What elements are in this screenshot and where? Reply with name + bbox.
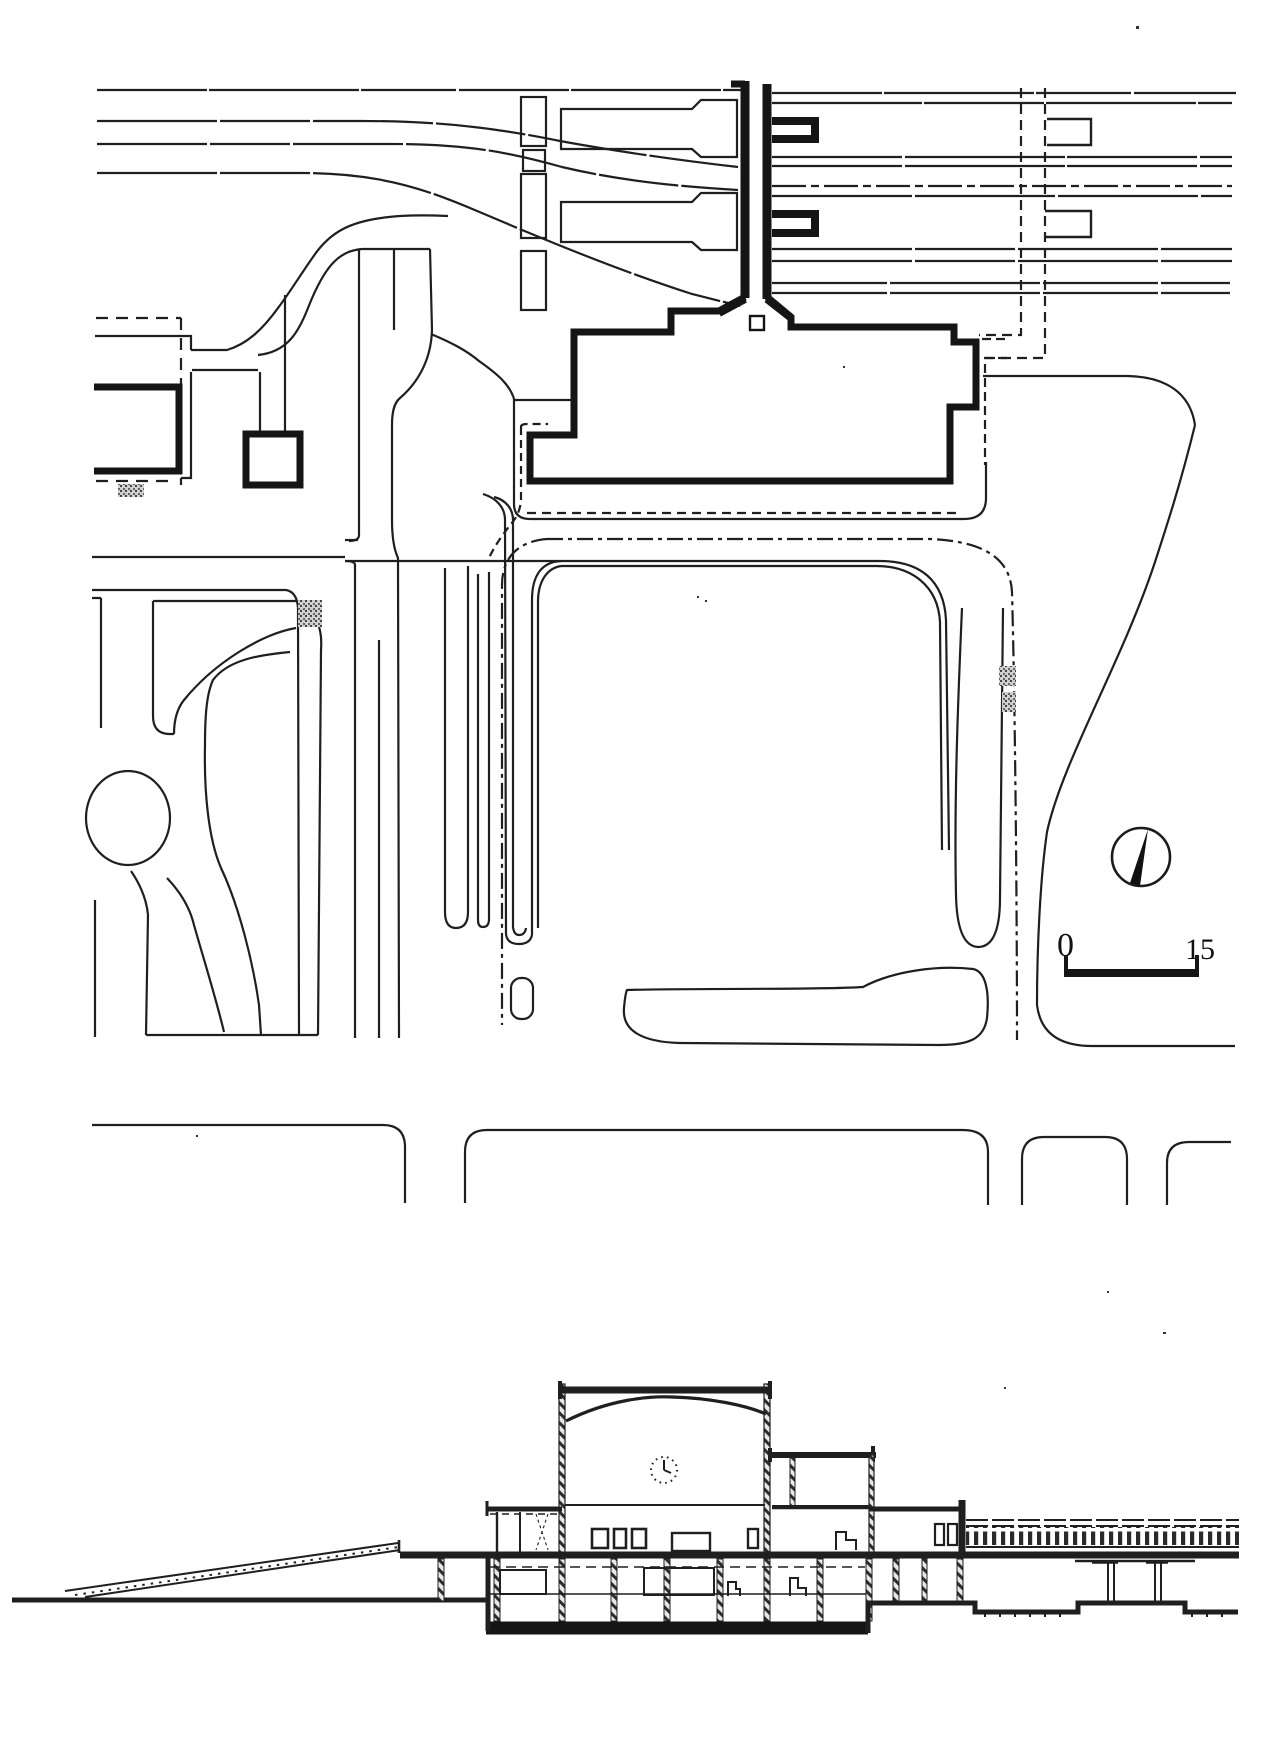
svg-text:15: 15	[1185, 933, 1215, 966]
